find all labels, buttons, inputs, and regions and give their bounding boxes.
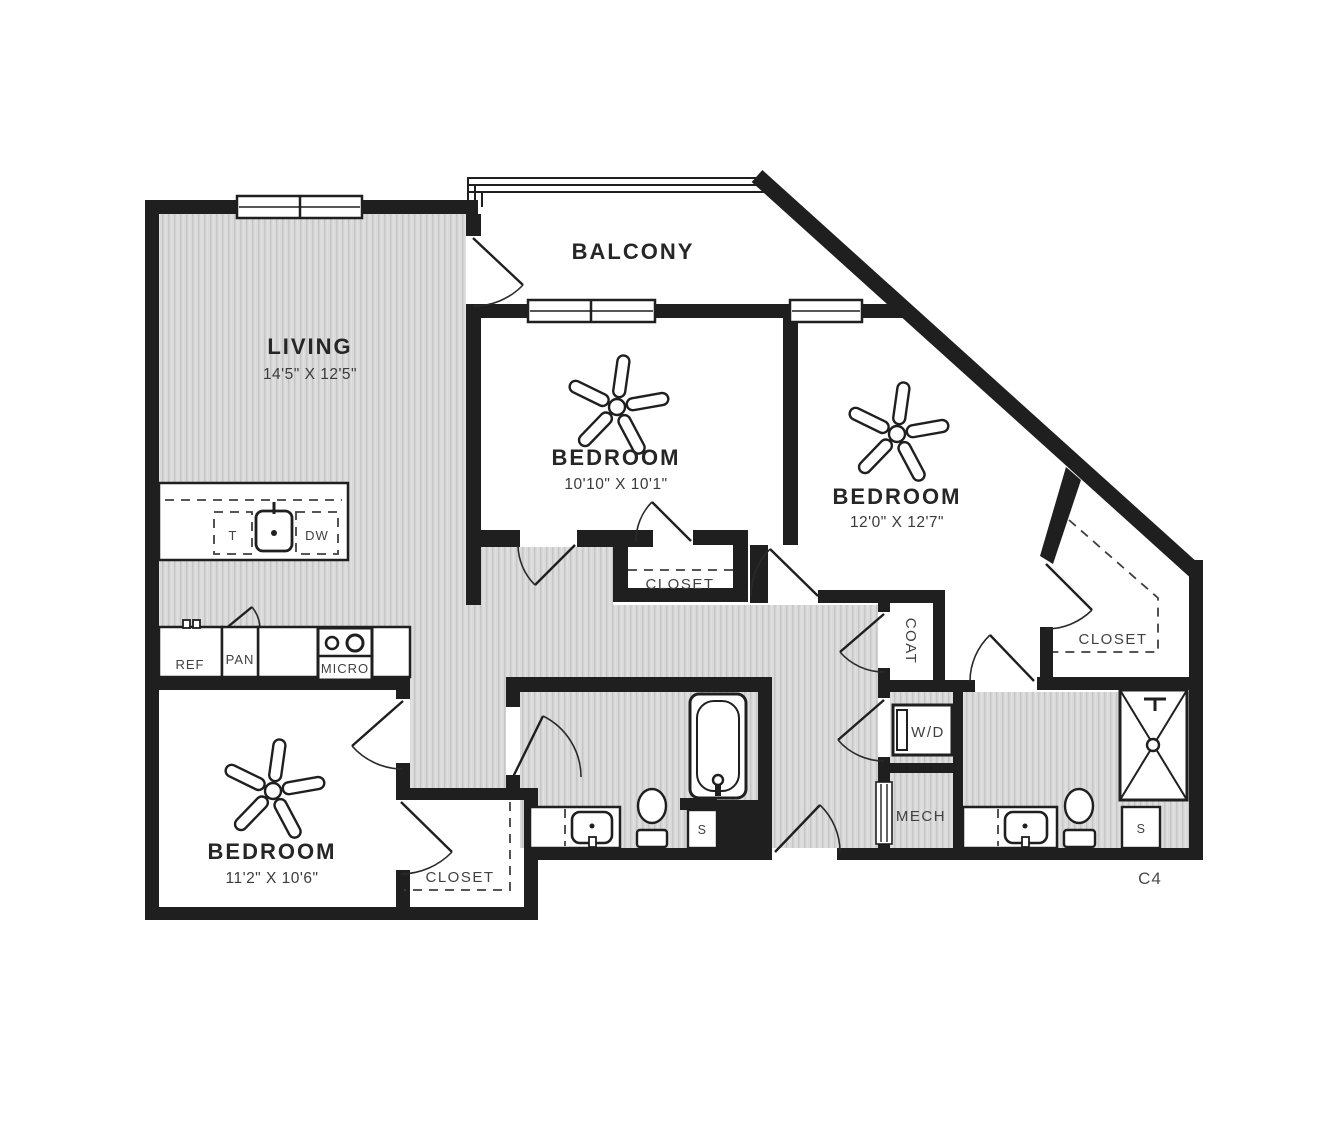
room-label-bedroom-right: BEDROOM: [833, 484, 962, 509]
label-shelf-bath2: S: [1137, 822, 1146, 836]
label-fridge: REF: [176, 657, 205, 672]
bedroom-middle-window: [528, 300, 655, 322]
toilet-icon: [1064, 789, 1095, 847]
bath2-door: [970, 635, 1034, 681]
walkin-closet-door: [1046, 564, 1092, 629]
label-pantry: PAN: [226, 652, 255, 667]
balcony-door: [473, 238, 523, 306]
label-dishwasher: DW: [305, 528, 329, 543]
label-coat: COAT: [902, 618, 919, 665]
room-dims-bedroom-right: 12'0" X 12'7": [850, 514, 944, 531]
bedroom-right-window: [790, 300, 862, 322]
label-washer-dryer: W/D: [911, 724, 945, 741]
balcony-railing: [467, 178, 776, 207]
bedroom-lower-closet-door: [401, 802, 452, 874]
mech-louver-door: [876, 782, 892, 844]
room-dims-bedroom-lower: 11'2" X 10'6": [226, 870, 319, 887]
shower-icon: [1120, 690, 1187, 800]
room-dims-living: 14'5" X 12'5": [263, 366, 357, 383]
label-closet-middle: CLOSET: [645, 576, 714, 593]
room-dims-bedroom-middle: 10'10" X 10'1": [564, 476, 667, 493]
bedroom-lower-door: [352, 701, 403, 769]
living-window: [237, 196, 362, 218]
vanity-sink-icon: [530, 807, 620, 848]
kitchen-island: [159, 483, 348, 560]
bathtub-icon: [690, 694, 746, 798]
room-label-bedroom-middle: BEDROOM: [552, 445, 681, 470]
room-label-living: LIVING: [267, 334, 352, 359]
unit-label: C4: [1138, 869, 1162, 888]
ceiling-fan-icon: [224, 739, 326, 840]
label-trash: T: [229, 528, 238, 543]
ceiling-fan-icon: [568, 355, 670, 456]
vanity-sink-icon: [963, 807, 1057, 848]
floor-plan-drawing: LIVING 14'5" X 12'5" BALCONY BEDROOM 10'…: [0, 0, 1336, 1140]
floor-plan-page: LIVING 14'5" X 12'5" BALCONY BEDROOM 10'…: [0, 0, 1336, 1140]
label-closet-walkin: CLOSET: [1078, 631, 1147, 648]
toilet-icon: [637, 789, 667, 847]
label-microwave: MICRO: [321, 661, 369, 676]
label-closet-lower: CLOSET: [425, 869, 494, 886]
label-mech: MECH: [896, 808, 946, 825]
room-label-bedroom-lower: BEDROOM: [208, 839, 337, 864]
room-label-balcony: BALCONY: [572, 239, 695, 264]
ceiling-fan-icon: [848, 382, 950, 483]
label-shelf-bath1: S: [698, 823, 707, 837]
